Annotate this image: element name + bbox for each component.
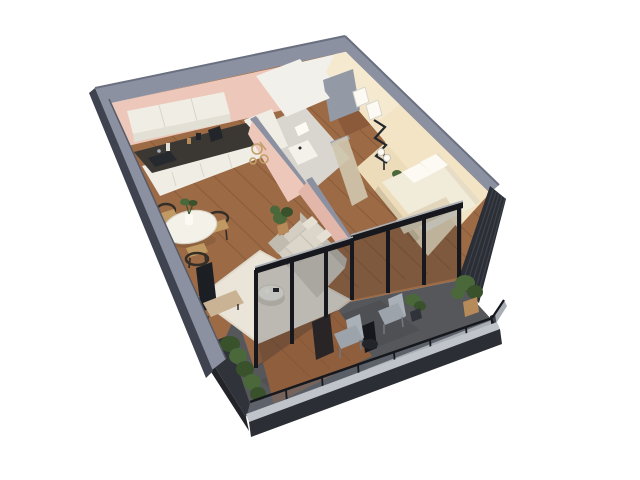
balcony-side-table bbox=[362, 339, 378, 349]
glass-post bbox=[254, 270, 258, 368]
small-appliance bbox=[196, 133, 201, 140]
floorplan-render bbox=[0, 0, 640, 480]
glass-post bbox=[457, 205, 461, 278]
paper-roll bbox=[384, 155, 391, 162]
open-door-panel bbox=[312, 314, 334, 360]
faucet bbox=[157, 149, 161, 153]
paper-roll bbox=[378, 149, 385, 156]
table-vase bbox=[185, 214, 193, 225]
floorplan-svg bbox=[0, 0, 640, 480]
jar bbox=[187, 138, 191, 144]
glass-post bbox=[386, 227, 390, 293]
vanity-tap bbox=[299, 147, 302, 150]
glass-post bbox=[422, 216, 426, 285]
glass-post bbox=[290, 259, 294, 344]
glass-post bbox=[324, 249, 328, 318]
bottle bbox=[166, 143, 170, 151]
